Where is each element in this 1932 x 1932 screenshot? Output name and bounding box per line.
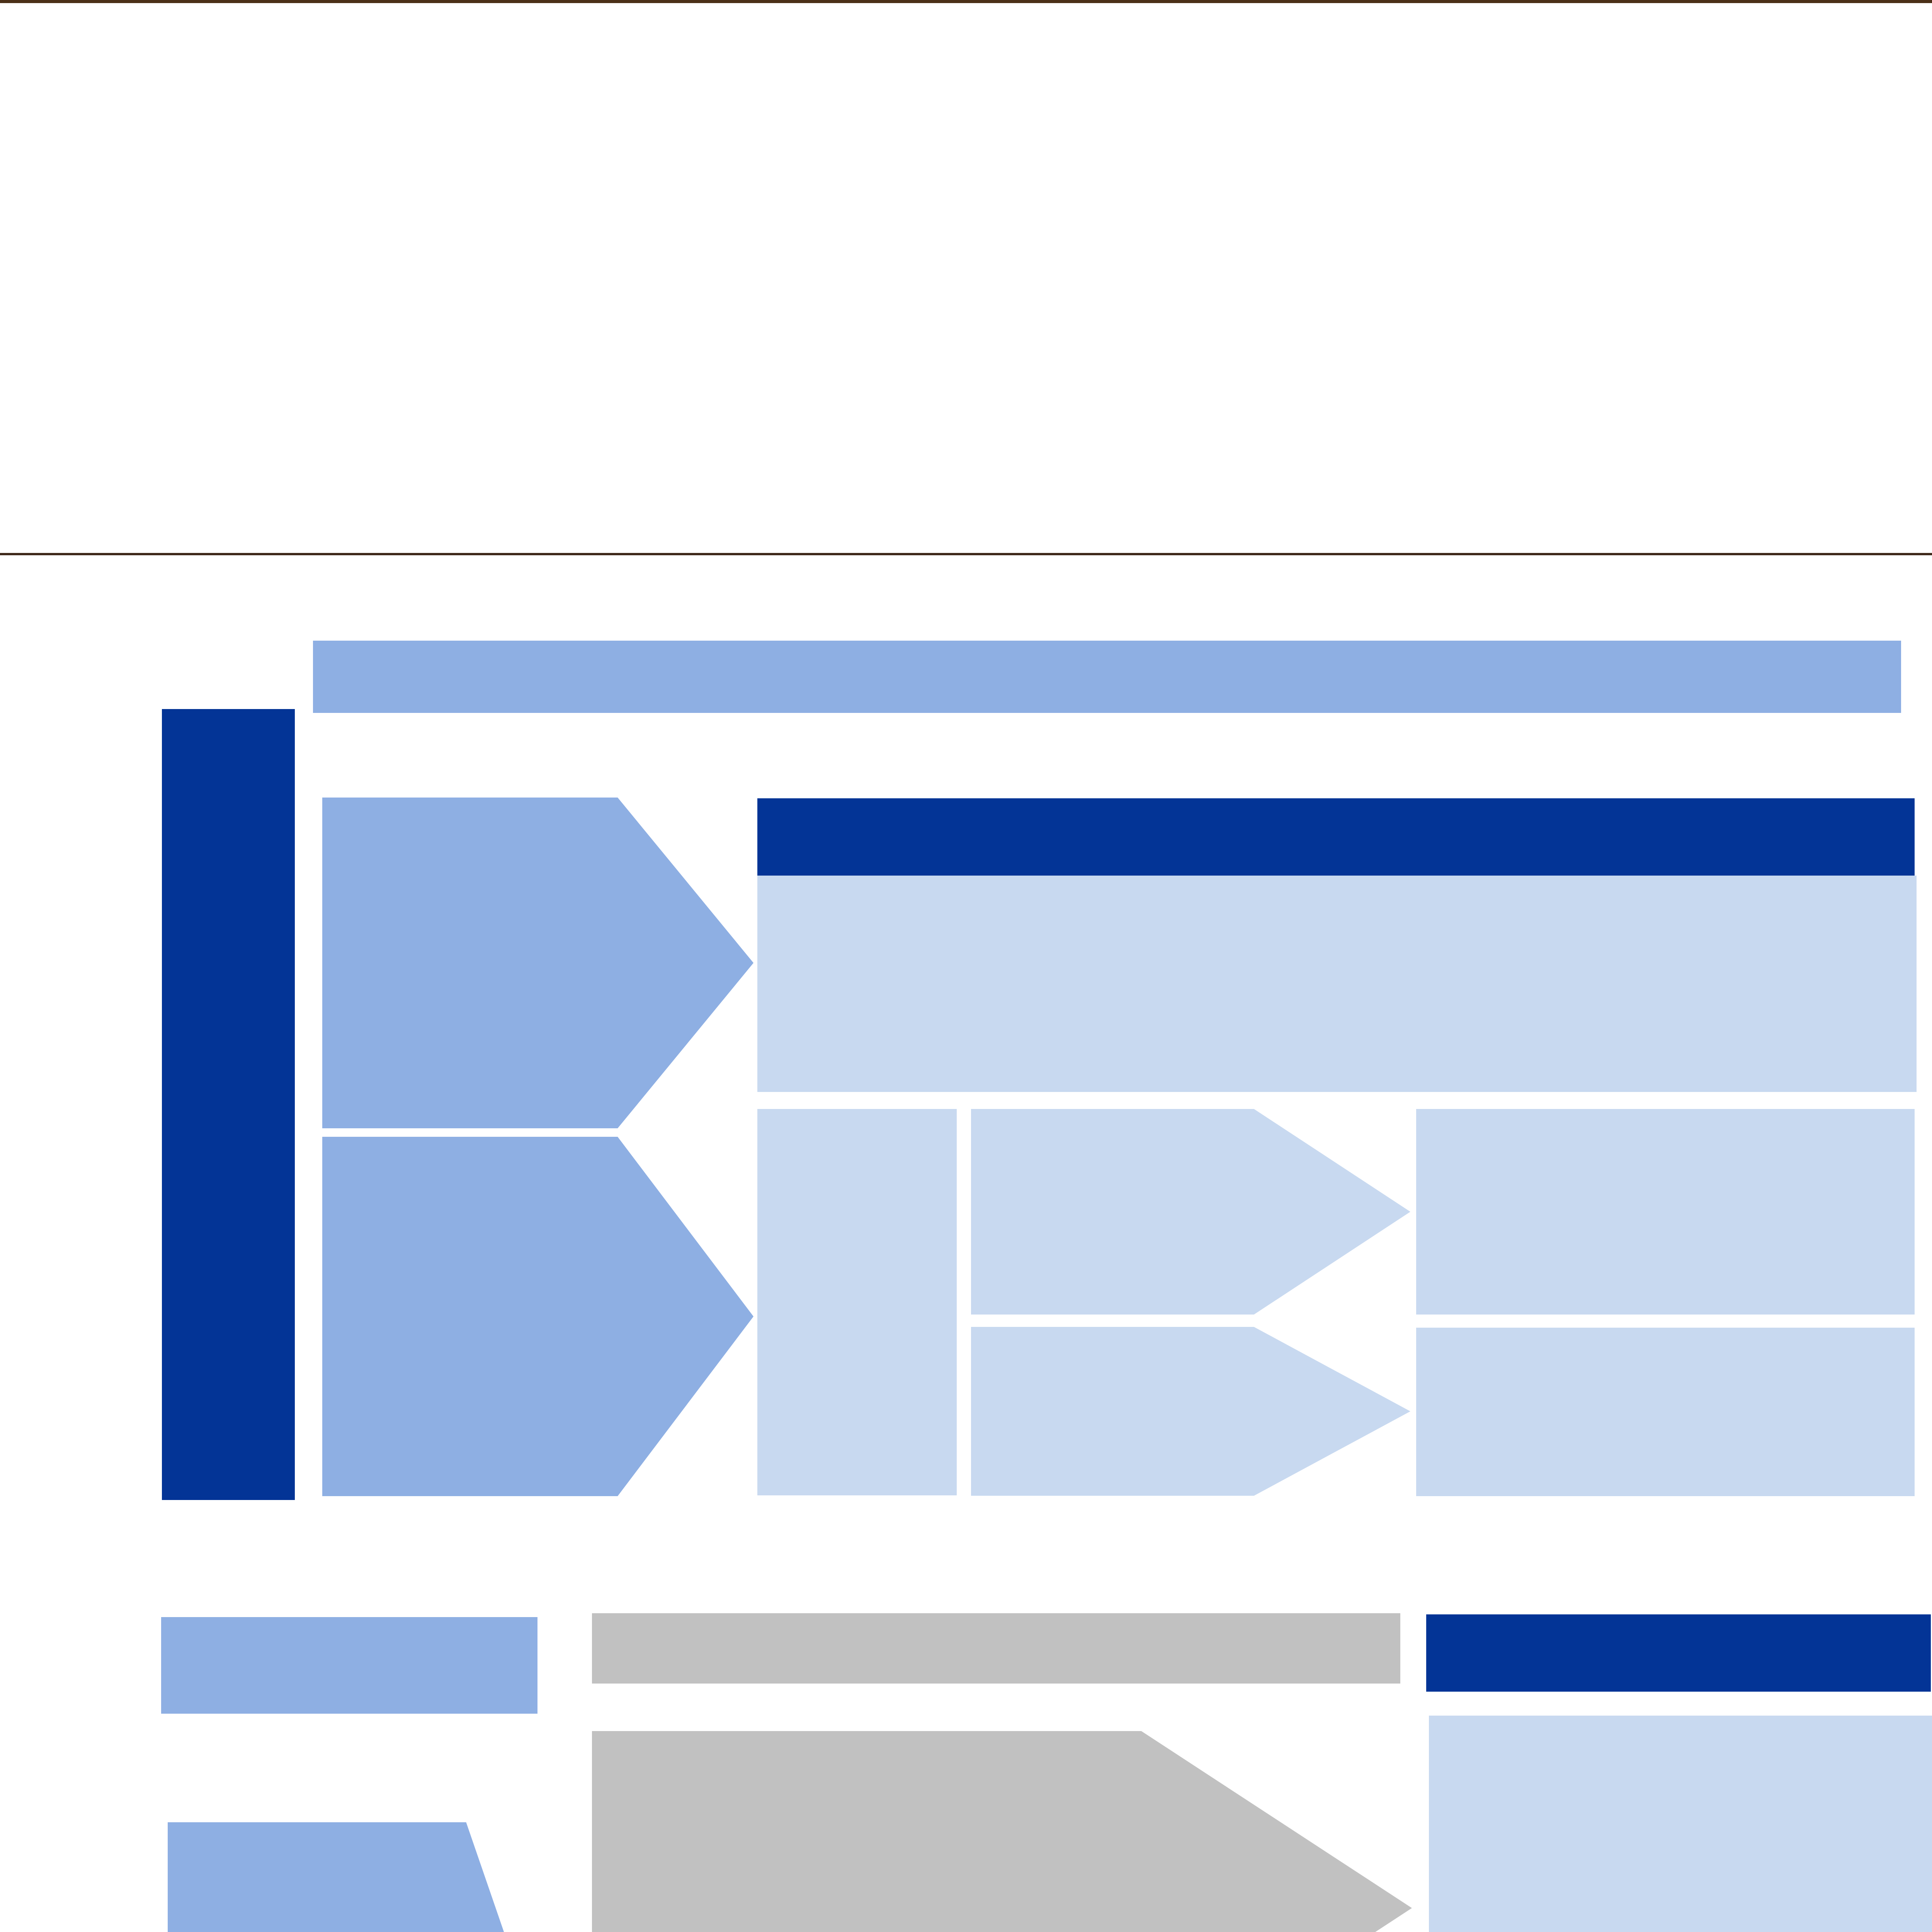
bottom-result-box-1 [1429,1716,1932,1932]
sub-column [757,1109,957,1495]
label-box [161,1617,537,1714]
slide-page: J.P.Morgan [0,0,1932,1932]
top-border-bar [0,0,1932,3]
gray-chevron-1 [592,1731,1412,1932]
column-header-navy [1426,1614,1931,1692]
header-rule [0,553,1932,555]
chevron-arrow-1 [322,798,753,1128]
result-box-2 [1416,1328,1915,1496]
column-header-gray [592,1613,1400,1684]
left-accent-bar [162,709,295,1500]
chevron-arrow-2 [322,1137,753,1496]
result-box-1 [1416,1109,1915,1315]
sub-chevron-1 [971,1109,1410,1315]
title-banner [313,641,1901,713]
panel-body [757,876,1917,1092]
big-chevron [168,1822,577,1932]
panel-header [757,798,1915,876]
sub-chevron-2 [971,1327,1410,1496]
